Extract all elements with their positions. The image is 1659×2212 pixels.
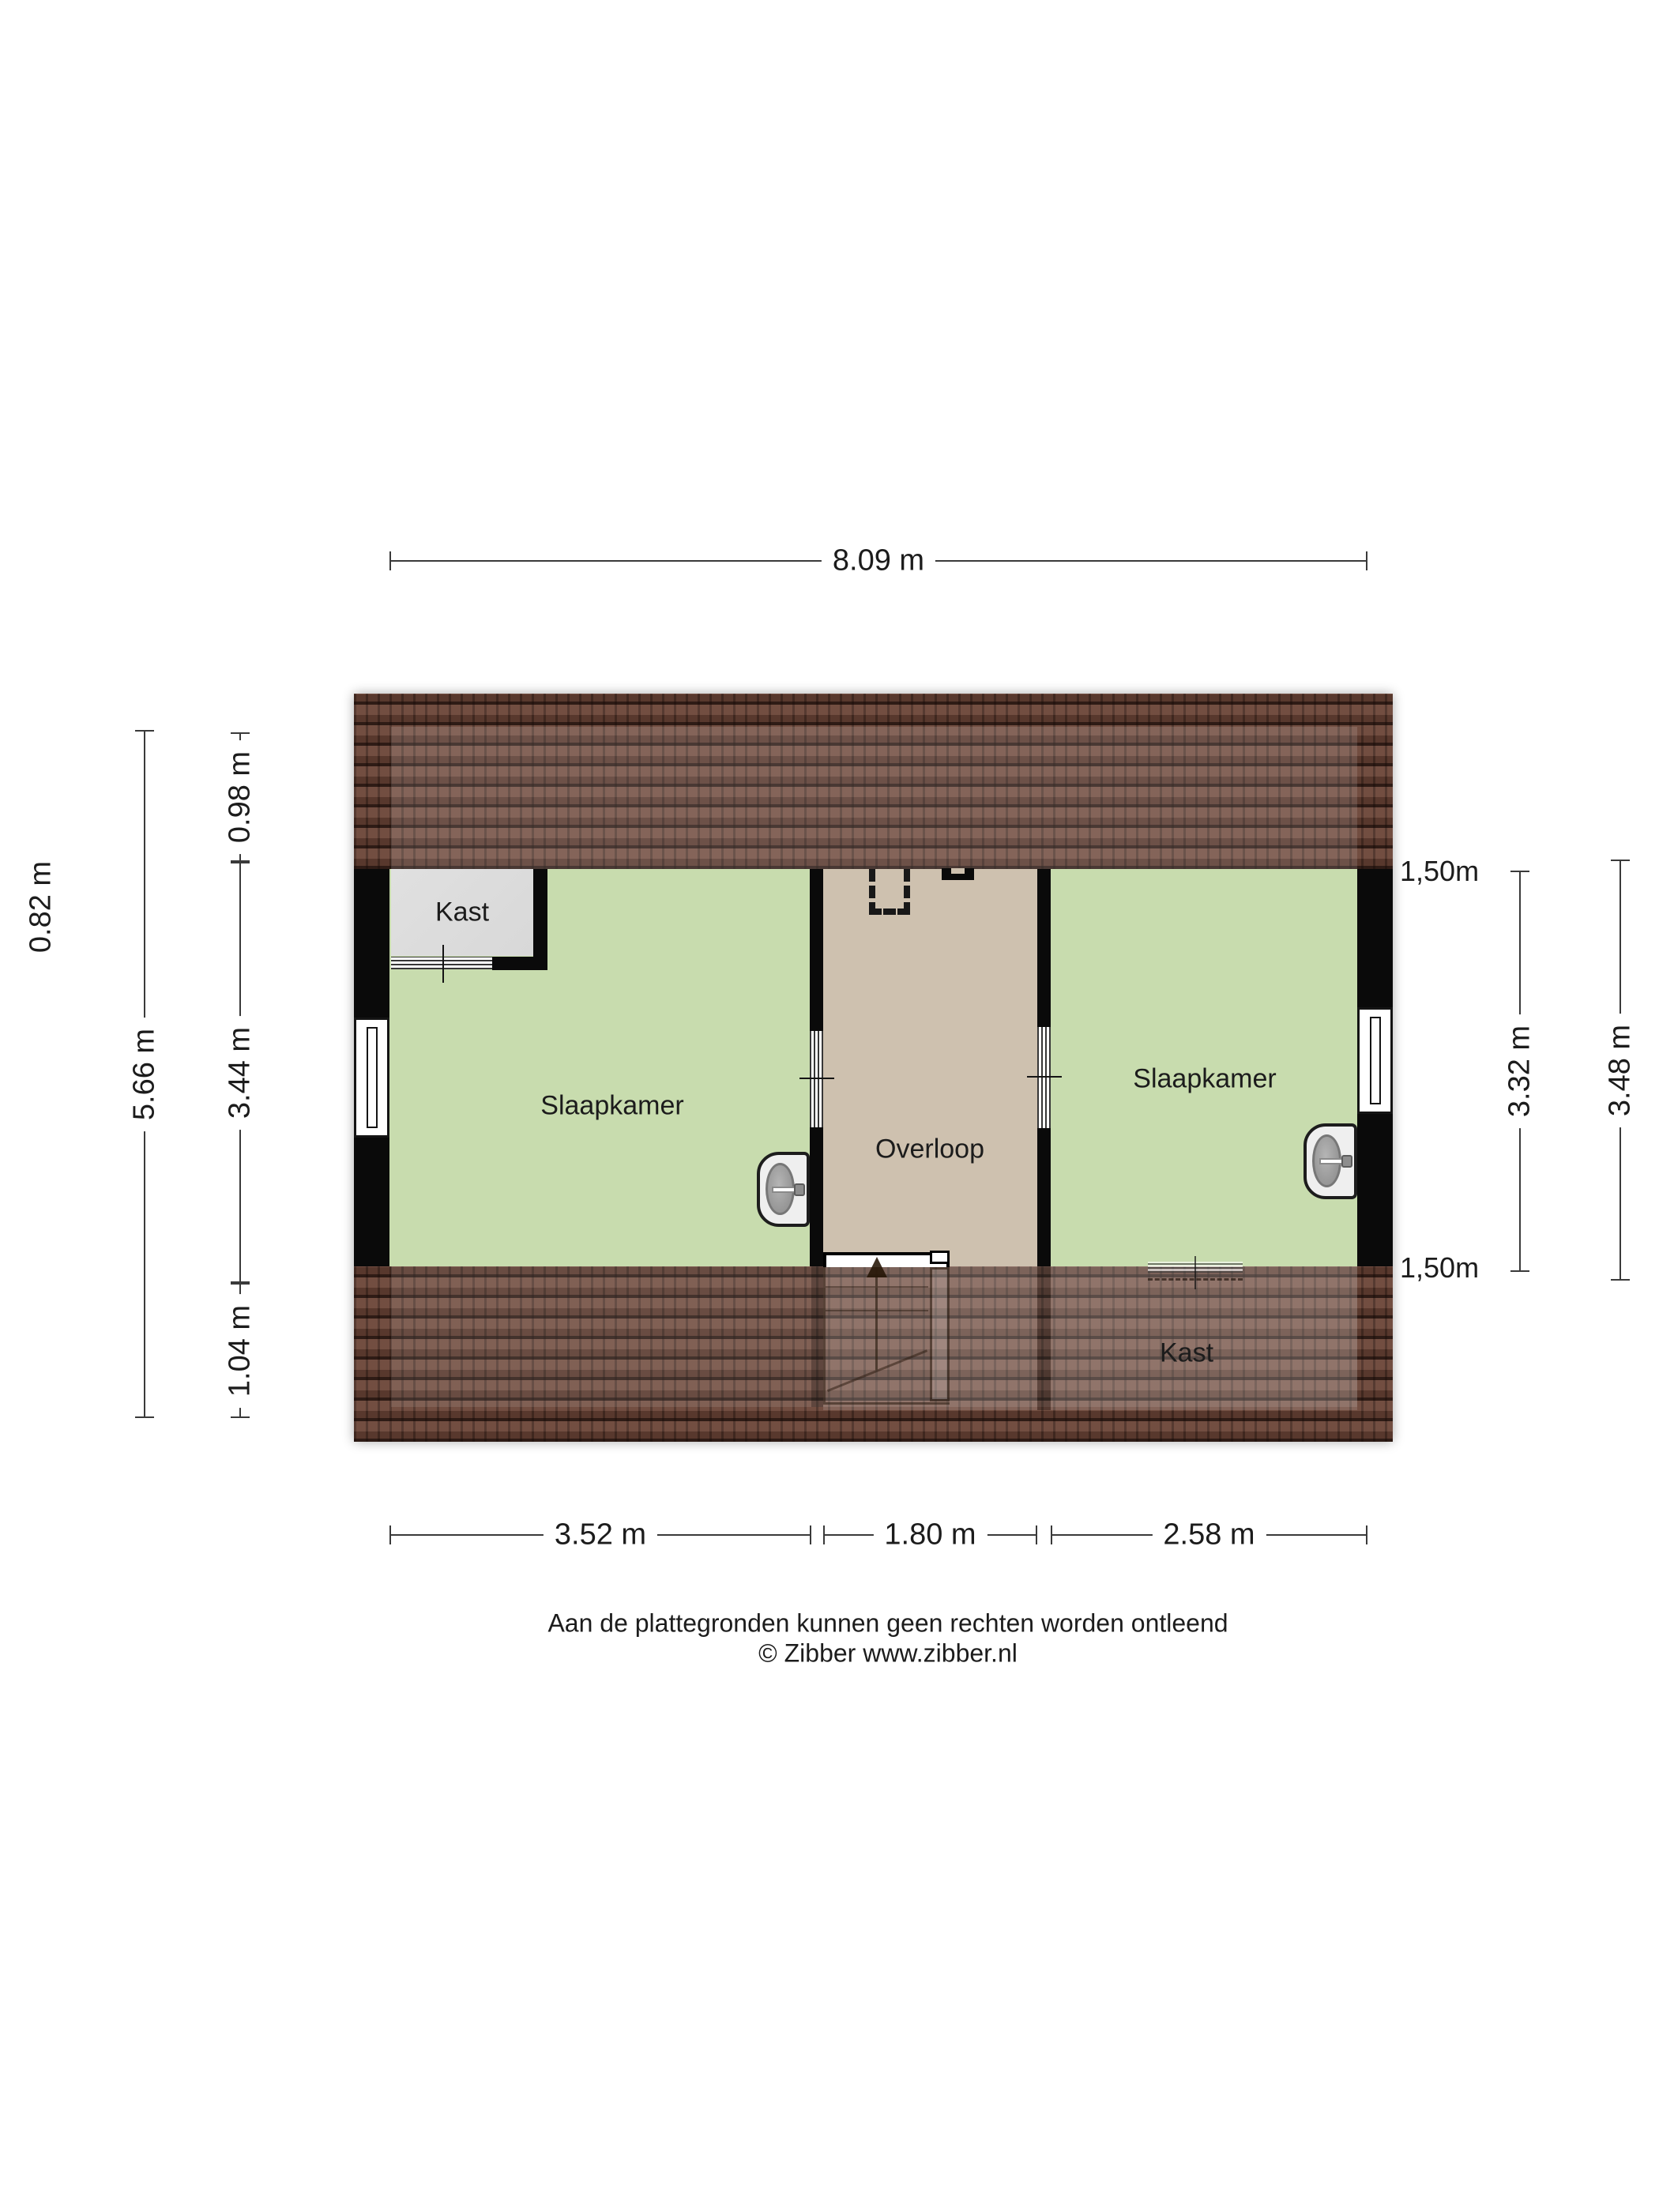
dim-label: 8.09 m <box>822 544 935 578</box>
sink-icon <box>757 1152 810 1227</box>
wall-shadow-under-roof <box>811 1266 823 1407</box>
wall-hallway-right-upper <box>1037 869 1051 1027</box>
wall-shadow-under-roof <box>1037 1266 1051 1410</box>
door-bedroom-left <box>810 1031 823 1127</box>
dim-tick <box>135 730 154 732</box>
footer-disclaimer: Aan de plattegronden kunnen geen rechten… <box>547 1609 1228 1638</box>
label-knee-wall-bottom: 1,50m <box>1400 1251 1479 1285</box>
sink-faucet-knob <box>794 1183 805 1196</box>
label-bedroom-right: Slaapkamer <box>1133 1064 1276 1095</box>
label-closet-under-roof: Kast <box>1160 1338 1213 1369</box>
wall-exterior-right-upper <box>1357 869 1393 1007</box>
dim-tick <box>1366 551 1367 570</box>
dim-label: 5.66 m <box>128 1017 162 1130</box>
footer-copyright: © Zibber www.zibber.nl <box>758 1639 1018 1668</box>
label-knee-wall-top: 1,50m <box>1400 855 1479 888</box>
dim-tick <box>810 1525 811 1544</box>
dimension-left-total: 5.66 m <box>134 730 155 1418</box>
wall-closet-right <box>533 869 547 970</box>
door-swing-mark <box>799 1078 834 1079</box>
wall-exterior-left-upper <box>354 869 389 1018</box>
dim-tick <box>823 1525 825 1544</box>
door-bedroom-right <box>1037 1027 1051 1128</box>
roof-top-inner-highlight <box>391 727 1357 869</box>
dimension-left-segment-1: 0.98 m <box>230 732 250 862</box>
label-hallway: Overloop <box>875 1134 984 1165</box>
sink-faucet <box>1319 1158 1343 1164</box>
dim-tick <box>231 1416 250 1418</box>
door-swing-mark <box>1194 1256 1196 1289</box>
wall-hallway-right-lower <box>1037 1128 1051 1266</box>
dim-tick <box>1051 1525 1052 1544</box>
chimney-notch <box>951 868 965 874</box>
dim-tick <box>1611 1279 1630 1281</box>
room-hallway <box>823 869 1037 1266</box>
staircase <box>823 1267 950 1405</box>
dimension-bottom-segment-3: 2.58 m <box>1051 1525 1367 1545</box>
stair-arrow-stem <box>875 1277 878 1370</box>
door-swing-mark <box>442 945 444 983</box>
label-closet-top: Kast <box>435 897 489 928</box>
dim-tick <box>231 862 250 863</box>
dimension-bottom-segment-1: 3.52 m <box>389 1525 811 1545</box>
dim-label: 2.58 m <box>1152 1518 1266 1552</box>
sink-faucet <box>772 1187 796 1193</box>
dimension-bottom-segment-2: 1.80 m <box>823 1525 1037 1545</box>
window-pane <box>1370 1017 1381 1104</box>
dim-tick <box>389 551 391 570</box>
dim-tick <box>1611 860 1630 861</box>
dimension-left-segment-3: 1.04 m <box>230 1283 250 1418</box>
dim-tick <box>1366 1525 1367 1544</box>
dim-tick <box>389 1525 391 1544</box>
dim-tick <box>1510 1270 1529 1272</box>
dimension-left-segment-2: 3.44 m <box>230 862 250 1283</box>
dimension-right-total: 3.48 m <box>1610 860 1631 1281</box>
dim-tick <box>231 1283 250 1285</box>
wall-exterior-right-lower <box>1357 1114 1393 1266</box>
wall-hallway-left-lower <box>810 1127 823 1266</box>
window-pane <box>367 1027 378 1128</box>
dim-tick <box>231 732 250 734</box>
wall-exterior-left-lower <box>354 1138 389 1266</box>
dim-label: 3.44 m <box>224 1015 258 1129</box>
floorplan-page: Slaapkamer Overloop Slaapkamer Kast Kast… <box>0 0 1659 2212</box>
roof-top-band <box>354 694 1393 869</box>
sink-faucet-knob <box>1341 1155 1352 1168</box>
wall-closet-bottom <box>492 957 547 970</box>
stair-direction-arrow-icon <box>867 1257 887 1277</box>
dimension-left-offset: 0.82 m <box>24 853 58 961</box>
window-right-wall <box>1357 1007 1393 1114</box>
dim-label: 3.52 m <box>544 1518 657 1552</box>
dashed-opening <box>869 869 910 915</box>
stair-edge <box>823 1267 826 1405</box>
label-bedroom-left: Slaapkamer <box>540 1091 683 1122</box>
dim-label: 1.04 m <box>224 1293 258 1407</box>
stair-rail <box>930 1267 950 1401</box>
stair-newel-box <box>930 1251 950 1264</box>
dim-tick <box>1036 1525 1037 1544</box>
wall-hallway-left-upper <box>810 869 823 1031</box>
dim-tick <box>1510 871 1529 872</box>
door-swing-mark <box>1027 1076 1062 1078</box>
stair-edge <box>823 1402 950 1405</box>
dim-label: 1.80 m <box>873 1518 987 1552</box>
window-left-wall <box>354 1018 389 1138</box>
door-closet-top-left <box>391 957 492 969</box>
dimension-right-inner: 3.32 m <box>1510 871 1530 1272</box>
dim-tick <box>135 1416 154 1418</box>
dimension-top-width: 8.09 m <box>389 551 1367 571</box>
dim-label: 3.48 m <box>1604 1013 1638 1127</box>
dim-label: 3.32 m <box>1503 1014 1537 1128</box>
dim-label: 0.98 m <box>224 740 258 854</box>
sink-icon <box>1303 1123 1357 1199</box>
